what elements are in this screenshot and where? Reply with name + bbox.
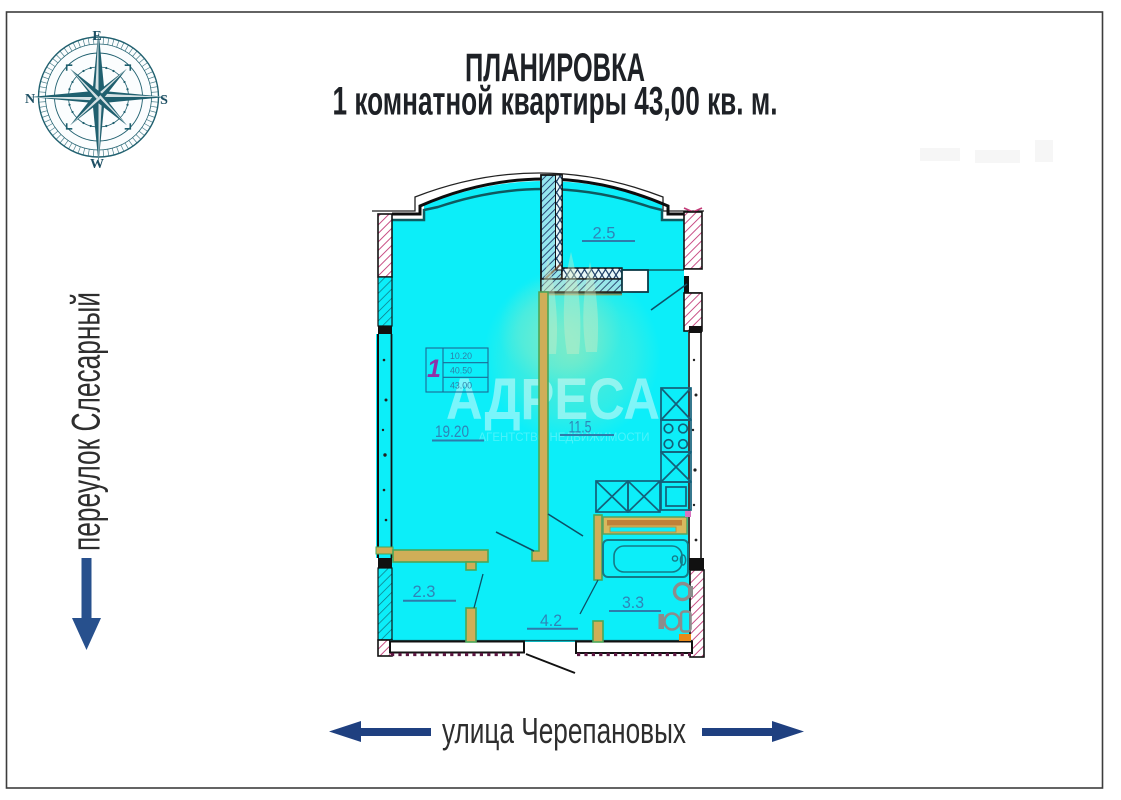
svg-text:1: 1 bbox=[427, 355, 441, 383]
svg-text:переулок Слесарный: переулок Слесарный bbox=[65, 292, 109, 551]
svg-text:11.5: 11.5 bbox=[569, 418, 592, 437]
svg-text:19.20: 19.20 bbox=[435, 422, 469, 441]
svg-text:3.3: 3.3 bbox=[622, 593, 644, 612]
svg-text:2.3: 2.3 bbox=[413, 582, 436, 601]
svg-text:S: S bbox=[160, 93, 168, 108]
svg-text:1 комнатной квартиры 43,00 кв.: 1 комнатной квартиры 43,00 кв. м. bbox=[333, 80, 778, 124]
svg-text:10.20: 10.20 bbox=[450, 351, 472, 362]
svg-text:2.5: 2.5 bbox=[593, 224, 616, 243]
svg-text:АГЕНТСТВО НЕДВИЖИМОСТИ: АГЕНТСТВО НЕДВИЖИМОСТИ bbox=[479, 432, 650, 444]
svg-text:W: W bbox=[90, 157, 104, 172]
svg-text:43.00: 43.00 bbox=[450, 380, 472, 391]
svg-text:40.50: 40.50 bbox=[450, 366, 472, 377]
svg-text:улица Черепановых: улица Черепановых bbox=[442, 710, 686, 751]
svg-text:E: E bbox=[92, 29, 101, 44]
svg-text:4.2: 4.2 bbox=[540, 611, 562, 630]
svg-text:N: N bbox=[25, 92, 35, 107]
